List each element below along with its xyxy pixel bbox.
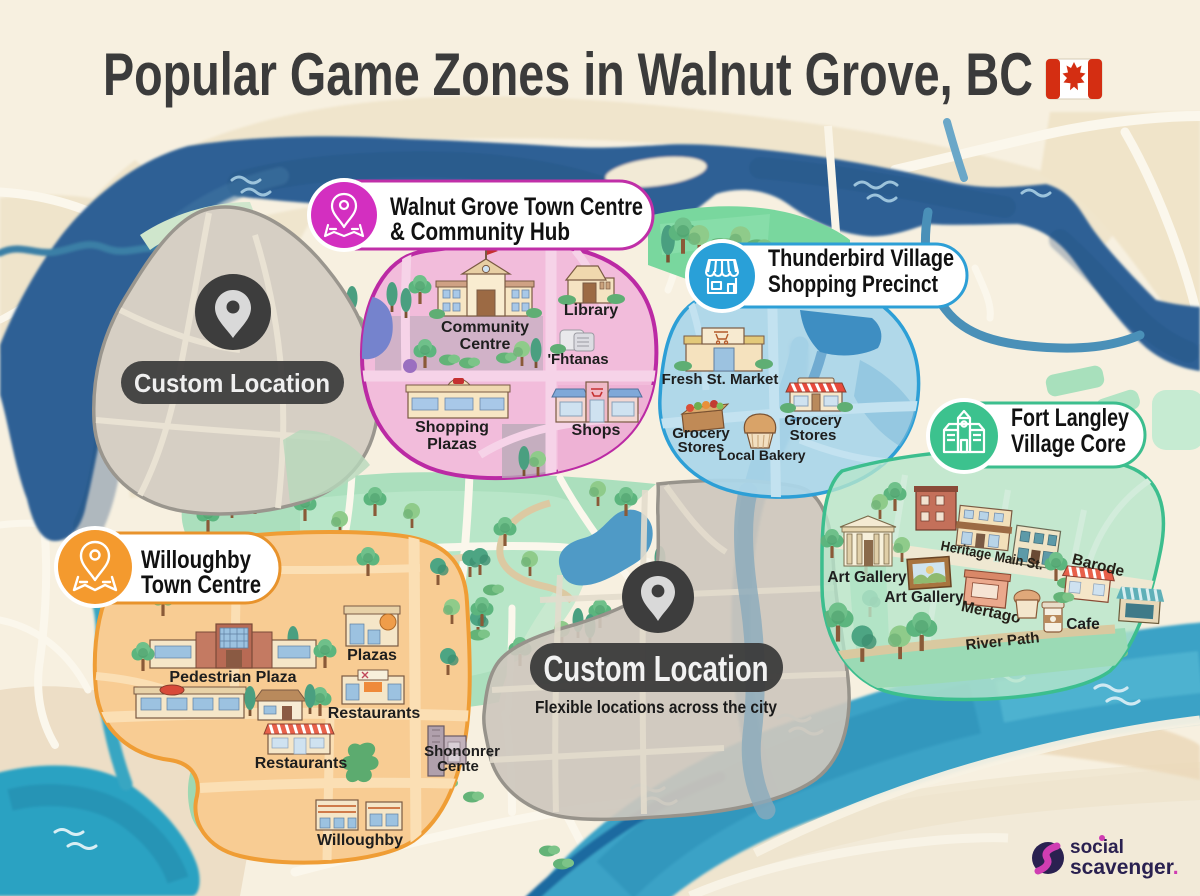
svg-text:Plazas: Plazas (427, 436, 477, 453)
svg-text:Shops: Shops (572, 422, 621, 439)
svg-text:Stores: Stores (678, 439, 725, 456)
svg-text:Popular Game Zones in Walnut G: Popular Game Zones in Walnut Grove, BC (103, 41, 1033, 108)
svg-text:Village Core: Village Core (1011, 430, 1126, 458)
svg-text:Cafe: Cafe (1066, 616, 1100, 633)
svg-text:Shopping Precinct: Shopping Precinct (768, 271, 938, 298)
svg-text:Fort Langley: Fort Langley (1011, 404, 1129, 432)
svg-text:Library: Library (564, 302, 618, 319)
svg-text:Town Centre: Town Centre (141, 571, 261, 599)
svg-text:Pedestrian Plaza: Pedestrian Plaza (169, 669, 296, 686)
svg-text:Art Gallery: Art Gallery (884, 589, 964, 606)
svg-text:Centre: Centre (460, 336, 511, 353)
svg-text:Flexible locations across the: Flexible locations across the city (535, 697, 777, 717)
svg-text:Thunderbird Village: Thunderbird Village (768, 245, 954, 272)
svg-text:Shopping: Shopping (415, 419, 489, 436)
svg-text:Custom Location: Custom Location (134, 368, 330, 398)
svg-text:Custom Location: Custom Location (544, 648, 769, 689)
svg-text:Stores: Stores (790, 427, 837, 444)
svg-text:'Fhtanas: 'Fhtanas (547, 351, 608, 368)
svg-text:scavenger.: scavenger. (1070, 856, 1179, 879)
svg-text:Local Bakery: Local Bakery (718, 447, 805, 463)
svg-text:Community: Community (441, 319, 529, 336)
svg-text:Restaurants: Restaurants (328, 705, 421, 722)
svg-text:Walnut Grove Town Centre: Walnut Grove Town Centre (390, 193, 643, 221)
svg-text:Willoughby: Willoughby (317, 832, 403, 849)
svg-text:Fresh St. Market: Fresh St. Market (662, 371, 779, 388)
svg-text:Art Gallery: Art Gallery (827, 569, 907, 586)
svg-text:Willoughby: Willoughby (141, 546, 251, 574)
svg-text:Cente: Cente (437, 758, 479, 775)
svg-text:Restaurants: Restaurants (255, 755, 348, 772)
svg-text:& Community Hub: & Community Hub (390, 218, 570, 246)
svg-text:Plazas: Plazas (347, 647, 397, 664)
svg-text:social: social (1070, 837, 1124, 858)
